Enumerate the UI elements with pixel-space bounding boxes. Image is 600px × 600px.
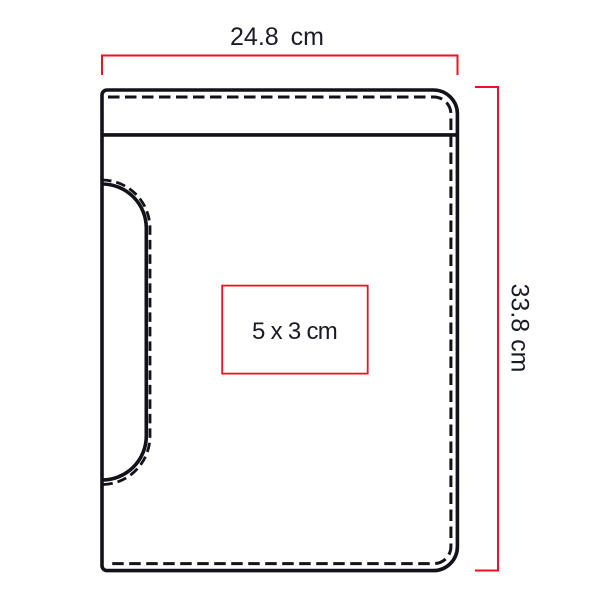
svg-text:5 x 3 cm: 5 x 3 cm — [252, 318, 337, 345]
svg-text:24.8 cm: 24.8 cm — [230, 23, 324, 51]
svg-text:33.8 cm: 33.8 cm — [506, 284, 534, 373]
